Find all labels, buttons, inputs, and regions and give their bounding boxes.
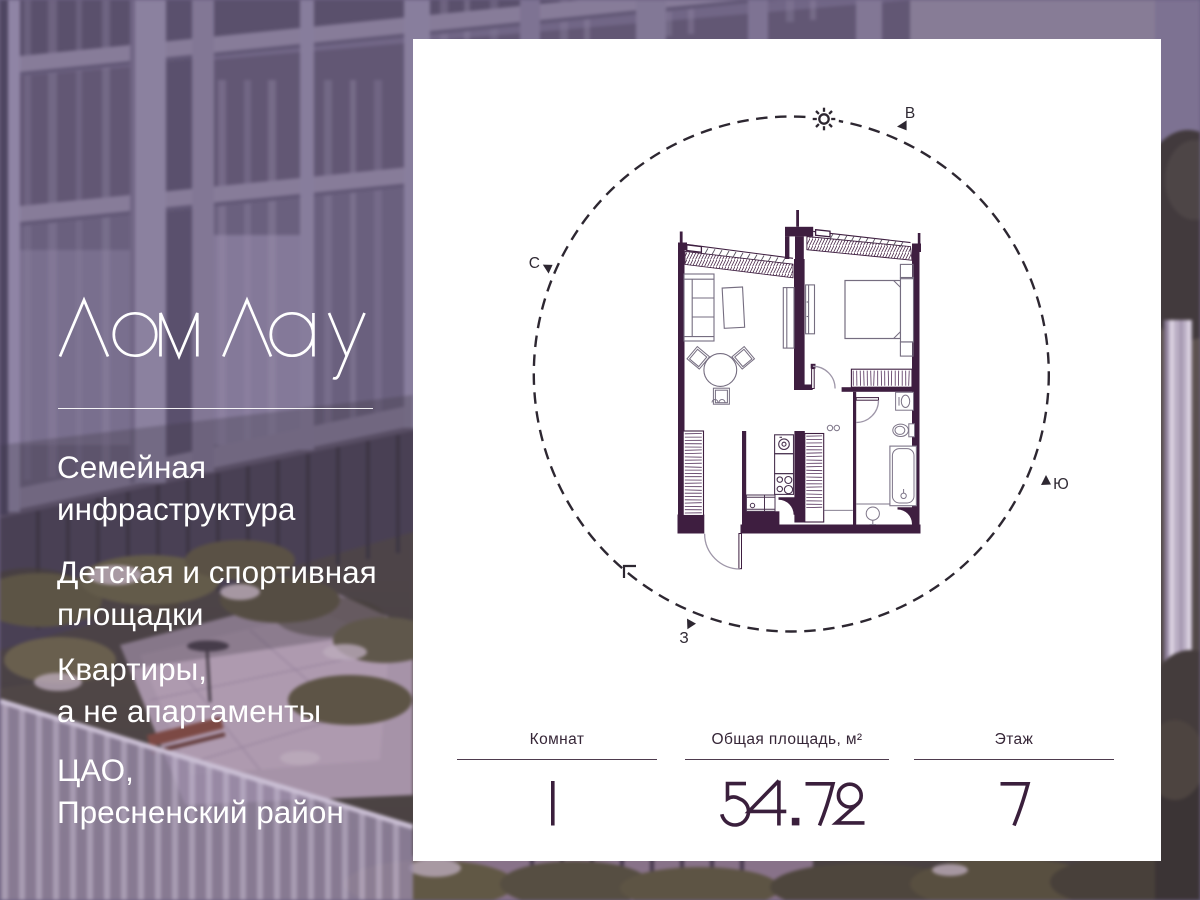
svg-text:З: З	[679, 630, 688, 647]
svg-text:С: С	[529, 255, 540, 272]
svg-text:Ю: Ю	[1053, 476, 1069, 493]
svg-text:В: В	[905, 105, 915, 122]
